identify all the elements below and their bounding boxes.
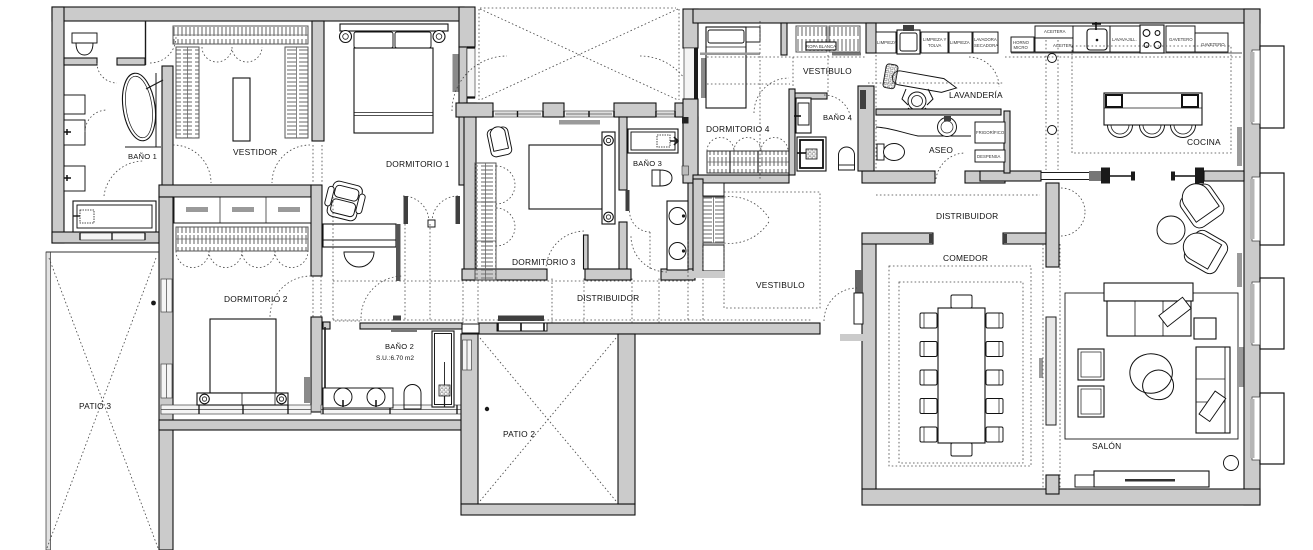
svg-text:GAVETERO: GAVETERO (1169, 37, 1193, 42)
svg-text:DISTRIBUIDOR: DISTRIBUIDOR (936, 211, 998, 221)
svg-text:COMEDOR: COMEDOR (943, 253, 988, 263)
svg-text:BAÑO 3: BAÑO 3 (633, 159, 662, 168)
svg-text:ACEITERA: ACEITERA (1053, 43, 1075, 48)
svg-text:VESTIBULO: VESTIBULO (803, 66, 852, 76)
svg-text:BAÑO 2: BAÑO 2 (385, 342, 414, 351)
svg-text:SECADORA: SECADORA (974, 43, 998, 48)
svg-text:SALÓN: SALÓN (1092, 441, 1121, 451)
svg-text:ASEO: ASEO (929, 145, 953, 155)
svg-text:DORMITORIO 4: DORMITORIO 4 (706, 124, 770, 134)
svg-text:ACEITERA: ACEITERA (1044, 29, 1066, 34)
svg-text:VESTIBULO: VESTIBULO (756, 280, 805, 290)
svg-text:PATIO 2: PATIO 2 (503, 429, 535, 439)
svg-text:DISTRIBUIDOR: DISTRIBUIDOR (577, 293, 639, 303)
svg-text:LAVADORA: LAVADORA (974, 37, 997, 42)
svg-text:S.U.:6.70 m2: S.U.:6.70 m2 (376, 355, 414, 362)
svg-text:BAÑO 4: BAÑO 4 (823, 113, 852, 122)
svg-text:DORMITORIO 1: DORMITORIO 1 (386, 159, 450, 169)
svg-text:ROPA BLANCA: ROPA BLANCA (806, 44, 836, 49)
svg-text:LAVANDERÍA: LAVANDERÍA (949, 90, 1003, 100)
svg-text:COCINA: COCINA (1187, 137, 1221, 147)
svg-text:DORMITORIO 2: DORMITORIO 2 (224, 294, 288, 304)
svg-text:DESPENSA: DESPENSA (977, 154, 1001, 159)
svg-text:BAÑO 1: BAÑO 1 (128, 152, 157, 161)
svg-text:LIMPIEZA: LIMPIEZA (877, 40, 897, 45)
svg-text:LIMPIEZA Y: LIMPIEZA Y (923, 37, 946, 42)
svg-text:LIMPIEZA: LIMPIEZA (950, 40, 970, 45)
svg-text:DORMITORIO 3: DORMITORIO 3 (512, 257, 576, 267)
svg-text:LAVAVAJILL.: LAVAVAJILL. (1112, 37, 1137, 42)
svg-text:VESTIDOR: VESTIDOR (233, 147, 277, 157)
svg-text:FRIGORÍFICO: FRIGORÍFICO (976, 130, 1005, 135)
svg-text:PATIO 3: PATIO 3 (79, 401, 111, 411)
svg-text:MICRO: MICRO (1014, 45, 1029, 50)
svg-text:TOLVA: TOLVA (928, 43, 942, 48)
